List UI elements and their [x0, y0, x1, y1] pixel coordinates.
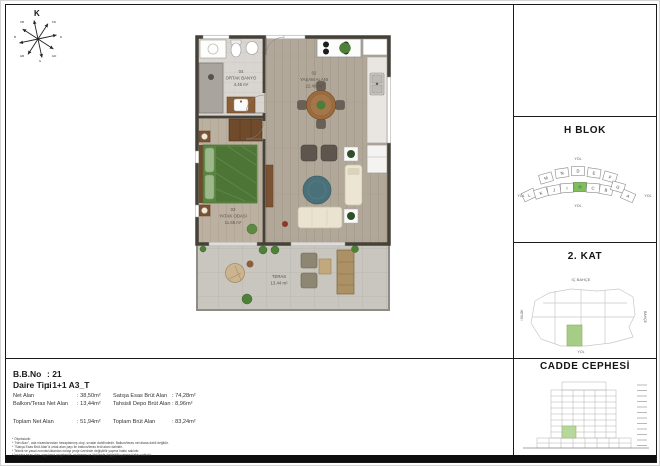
compass-d-label: D [60, 35, 63, 39]
area-label: Satışa Esas Brüt Alan [113, 393, 167, 399]
area-value: : 74,28m² [172, 393, 196, 399]
area-total-value: : 83,24m² [172, 419, 196, 425]
site-plan: M N D E F L K J I H C B G A YOL YOL YOL … [514, 151, 656, 213]
outdoor-table [319, 259, 331, 274]
terrace-floor [197, 244, 389, 310]
sidebar-rule-2 [513, 242, 656, 243]
red-plant [282, 221, 288, 227]
plant [242, 294, 252, 304]
window [195, 205, 199, 217]
plant [271, 246, 279, 254]
sideboard [266, 165, 273, 207]
unit-number-label: B.B.No [13, 369, 41, 379]
plant-stool [247, 224, 257, 234]
disclaimer-line: * İnşaata esas olan uygulama projeleridi… [12, 453, 342, 457]
side-table [247, 261, 254, 268]
area-label: Balkon/Teras Net Alan [13, 401, 68, 407]
block-label: C [591, 186, 594, 191]
room-area-living: 22.40 m² [306, 84, 324, 89]
infoblock-rule [5, 358, 656, 359]
unit-type-value: : 1+1 A3_T [47, 380, 89, 390]
window [195, 151, 199, 163]
compass-b-label: B [14, 35, 16, 39]
left-block-label: I BLOK [520, 309, 524, 321]
room-area-bedroom: 11.65 m² [225, 220, 242, 225]
plant [352, 246, 359, 253]
stove [317, 39, 361, 57]
section-title-facade: CADDE CEPHESİ [514, 361, 656, 372]
pillow [205, 148, 214, 172]
road-label-right: YOL [644, 194, 651, 198]
room-name-bedroom: YATAK ODASI [219, 214, 247, 219]
unit-number-value: : 21 [47, 369, 62, 379]
section-title-hblok: H BLOK [514, 125, 656, 136]
room-no-bedroom: 03 [231, 207, 236, 212]
area-total-label: Toplam Brüt Alan [113, 419, 155, 425]
outdoor-chair [301, 253, 317, 268]
room-no-living: 02 [312, 71, 317, 76]
sofa [298, 207, 342, 228]
disclaimer-notes: * Ölçeksizdir. * "Net Alan", oda nizamla… [12, 437, 342, 457]
plant [340, 43, 351, 54]
rug [303, 176, 331, 204]
inner-garden-label: İÇ BAHÇE [572, 277, 591, 282]
plant [347, 212, 355, 220]
area-total-label: Toplam Net Alan [13, 419, 54, 425]
road-label: YOL [577, 350, 584, 354]
compass-rose-icon: K KD D GD G GB B KB [11, 5, 67, 63]
area-value: : 13,44m² [77, 401, 101, 407]
plant [347, 150, 355, 158]
plant [259, 246, 267, 254]
room-name-terrace: TERAS [272, 274, 286, 279]
room-no-bathroom: 04 [239, 69, 244, 74]
compass-kd-label: KD [52, 20, 57, 24]
area-value: : 38,50m² [77, 393, 101, 399]
window [387, 77, 391, 143]
facade-elevation [515, 375, 655, 455]
room-area-bathroom: 4.45 m² [234, 82, 249, 87]
wardrobe [229, 119, 262, 141]
room-name-bathroom: ORTAK BANYO [226, 76, 257, 81]
compass-kb-label: KB [20, 20, 24, 24]
sidebar-rule-1 [513, 116, 656, 117]
compass-gd-label: GD [52, 54, 57, 58]
section-title-kat: 2. KAT [514, 251, 656, 262]
window [203, 35, 229, 39]
compass-g-label: G [39, 59, 42, 63]
plant [200, 246, 206, 252]
floor-plan: 04 ORTAK BANYO 4.45 m² 02 YAŞAM ALANI 22… [195, 33, 391, 315]
counter [367, 57, 387, 143]
road-label-left: YOL [517, 194, 524, 198]
compass-gb-label: GB [20, 54, 24, 58]
floor-labels [637, 385, 647, 446]
area-total-value: : 51,94m² [77, 419, 101, 425]
shower [199, 63, 223, 113]
garden-label: BAHÇE [643, 311, 647, 323]
bed-headboard [199, 145, 203, 203]
area-label: Net Alan [13, 393, 34, 399]
road-label-bottom: YOL [574, 204, 581, 208]
area-value: : 8,96m² [172, 401, 193, 407]
fridge [367, 145, 387, 173]
pillow [205, 175, 214, 199]
area-label: Tahsisli Depo Brüt Alan [113, 401, 171, 407]
outdoor-chair [301, 273, 317, 288]
highlighted-unit [562, 426, 576, 438]
sidebar-divider [513, 4, 514, 456]
block-label: H [578, 185, 581, 190]
sink [246, 42, 258, 55]
block-label: D [576, 169, 579, 174]
outdoor-cabinet [337, 250, 354, 294]
room-area-terrace: 13.44 m² [271, 281, 289, 286]
highlighted-unit [567, 325, 582, 346]
floor-key-plan: İÇ BAHÇE YOL I BLOK BAHÇE [515, 269, 651, 357]
compass-north-label: K [34, 9, 40, 18]
armchair [321, 145, 337, 161]
road-label-top: YOL [574, 157, 581, 161]
armchair [301, 145, 317, 161]
unit-type-label: Daire Tipi [13, 380, 52, 390]
plan-sheet: K KD D GD G GB B KB [0, 0, 660, 466]
room-name-living: YAŞAM ALANI [300, 77, 328, 82]
highlighted-block-h: H [574, 183, 587, 192]
